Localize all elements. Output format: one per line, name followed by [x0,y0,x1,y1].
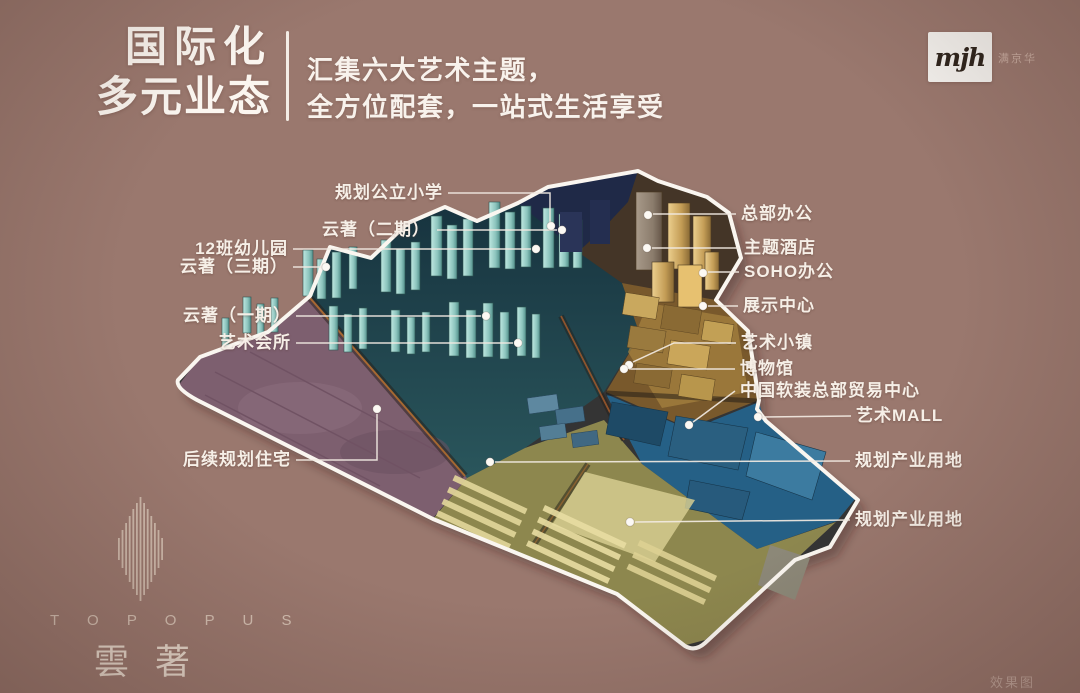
map-label-soft-deco-center: 中国软装总部贸易中心 [740,381,920,401]
map-label-yunzhu-phase3: 云著（三期） [180,257,288,277]
map-label-primary-school: 规划公立小学 [335,183,443,203]
poster-page: { "header": { "title_line1": "国际化", "tit… [0,0,1080,693]
render-note: 效果图 [990,672,1035,691]
map-label-future-residential: 后续规划住宅 [183,450,291,470]
map-label-industrial-2: 规划产业用地 [855,510,963,530]
subtitle-line-1: 汇集六大艺术主题， [307,52,665,89]
title-line-1: 国际化 [30,22,272,72]
map-label-art-town: 艺术小镇 [741,333,813,353]
map-label-theme-hotel: 主题酒店 [744,238,816,258]
map-label-hq-office: 总部办公 [741,204,813,224]
brand-bars-icon [117,492,165,606]
developer-logo-caption: 满京华 [998,50,1037,66]
map-label-yunzhu-phase2: 云著（二期） [322,220,430,240]
brand-name-en: T O P O P U S [50,612,304,629]
map-label-art-club: 艺术会所 [219,333,291,353]
map-label-yunzhu-phase1: 云著（一期） [183,306,291,326]
map-label-industrial-1: 规划产业用地 [855,451,963,471]
map-label-soho-office: SOHO办公 [744,262,834,282]
map-label-exhibition-center: 展示中心 [743,296,815,316]
map-label-museum: 博物馆 [740,359,794,379]
developer-logo: mjh [928,32,992,82]
map-label-art-mall: 艺术MALL [856,406,943,426]
brand-name-cn: 雲著 [94,634,216,685]
map-label-kindergarten: 12班幼儿园 [195,239,288,259]
page-subtitle: 汇集六大艺术主题， 全方位配套，一站式生活享受 [307,52,665,126]
title-line-2: 多元业态 [30,72,272,122]
page-title: 国际化 多元业态 [30,22,272,122]
subtitle-line-2: 全方位配套，一站式生活享受 [307,89,665,126]
developer-logo-text: mjh [935,43,986,72]
title-divider [286,31,289,121]
